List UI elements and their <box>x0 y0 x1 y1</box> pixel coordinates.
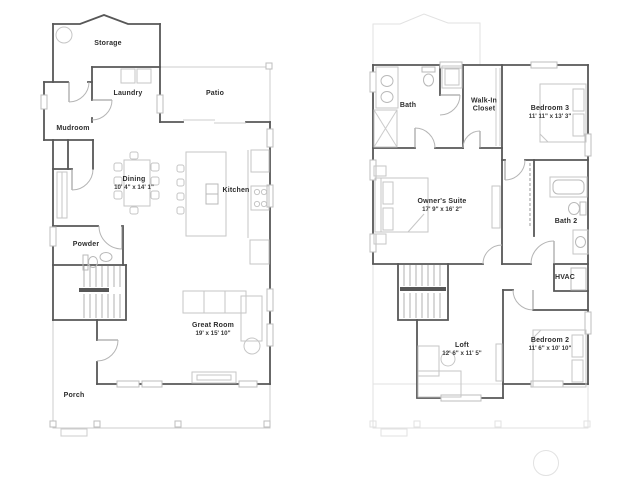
fridge <box>250 240 269 264</box>
door-arc <box>513 290 533 310</box>
stair-rail <box>400 287 446 291</box>
floorplan-canvas: Storage Laundry Patio Mudroom Dining10' … <box>0 0 640 480</box>
stair-treads <box>84 294 120 318</box>
water-heater <box>56 27 72 43</box>
burner <box>254 201 259 206</box>
sink <box>381 92 393 103</box>
powder-sink <box>100 253 112 262</box>
porch-step-overlay <box>381 429 407 436</box>
door-arc <box>440 95 460 115</box>
door-arc <box>483 245 502 264</box>
door-arc <box>415 128 435 148</box>
first-floor-drawing <box>0 0 320 480</box>
door-arc <box>463 131 480 148</box>
tv <box>197 375 231 380</box>
pillow <box>573 114 584 136</box>
ottoman <box>244 338 260 354</box>
porch-post-overlay <box>584 421 590 427</box>
porch-post <box>94 421 100 427</box>
window <box>370 72 376 92</box>
window <box>50 227 56 246</box>
stool <box>177 179 184 186</box>
pillow <box>383 208 393 230</box>
wall-storage-gable <box>53 15 160 24</box>
sliding-door <box>183 120 246 123</box>
tv-console <box>192 372 236 383</box>
porch-post-overlay <box>495 421 501 427</box>
porch-post <box>50 421 56 427</box>
window <box>239 381 257 387</box>
room-label-porch: Porch <box>64 392 85 400</box>
porch-post <box>175 421 181 427</box>
sink <box>576 237 586 248</box>
wall-loft <box>417 320 503 398</box>
toilet-tank <box>580 202 586 215</box>
porch-post <box>264 421 270 427</box>
window <box>440 62 462 68</box>
room-label-dining: Dining10' 4" x 14' 1" <box>114 176 154 192</box>
washer <box>121 69 135 83</box>
roof-overlay <box>373 14 480 65</box>
door-arc <box>531 241 554 264</box>
sofa <box>183 291 246 313</box>
window <box>41 95 47 109</box>
burner <box>254 189 259 194</box>
window <box>267 129 273 147</box>
second-floor-plan: Bath Walk-In Closet Bedroom 311' 11" x 1… <box>320 0 640 480</box>
pillow <box>572 360 583 382</box>
porch-outline <box>53 320 270 428</box>
chair <box>130 152 138 159</box>
shower-stall-inner <box>445 69 459 85</box>
window <box>117 381 139 387</box>
room-label-bedroom3: Bedroom 311' 11" x 13' 3" <box>529 105 572 121</box>
dryer <box>137 69 151 83</box>
door-arc <box>97 340 118 361</box>
stair-treads <box>404 265 440 286</box>
room-label-powder: Powder <box>73 241 99 249</box>
blanket-fold <box>540 134 548 142</box>
door-arc <box>92 100 112 120</box>
chair <box>114 191 122 199</box>
stool <box>177 165 184 172</box>
window <box>142 381 162 387</box>
room-label-great-room: Great Room19' x 15' 10" <box>192 322 234 338</box>
window <box>531 62 557 68</box>
door-arc <box>99 226 122 249</box>
stair-rail <box>79 288 109 292</box>
room-label-storage: Storage <box>94 40 121 48</box>
watermark-circle <box>534 451 559 476</box>
sofa-chaise <box>241 296 262 341</box>
patio-post <box>266 63 272 69</box>
window <box>267 324 273 346</box>
window <box>157 95 163 113</box>
pillow <box>572 335 583 357</box>
room-label-loft: Loft12' 6" x 11' 5" <box>442 342 481 358</box>
room-label-bath2: Bath 2 <box>555 218 578 226</box>
stool <box>177 193 184 200</box>
room-label-owners-suite: Owner's Suite17' 9" x 16' 2" <box>418 198 467 214</box>
console <box>496 344 502 381</box>
first-floor-plan: Storage Laundry Patio Mudroom Dining10' … <box>0 0 320 480</box>
blanket-fold <box>408 214 424 232</box>
room-label-bath: Bath <box>400 102 416 110</box>
dresser <box>492 186 500 228</box>
sink <box>381 76 393 87</box>
room-label-patio: Patio <box>206 90 224 98</box>
toilet-tank <box>422 67 435 72</box>
stair-treads <box>84 266 120 287</box>
second-floor-drawing <box>320 0 640 480</box>
door-arc <box>505 160 525 180</box>
chair <box>130 207 138 214</box>
stove <box>251 186 269 210</box>
door-arc <box>69 82 89 102</box>
shower-x <box>374 110 397 147</box>
chair <box>151 163 159 171</box>
sofa-cushions <box>204 291 225 313</box>
stair-treads <box>404 293 440 318</box>
pillow <box>383 182 393 204</box>
window <box>267 185 273 207</box>
room-label-bedroom2: Bedroom 211' 6" x 10' 10" <box>529 337 572 353</box>
room-label-hvac: HVAC <box>555 274 575 282</box>
room-label-kitchen: Kitchen <box>222 187 249 195</box>
window <box>370 160 376 180</box>
room-label-laundry: Laundry <box>113 90 142 98</box>
tub-inner <box>553 180 584 194</box>
pillow <box>573 89 584 111</box>
oven-cabinet <box>251 150 269 172</box>
chair <box>114 163 122 171</box>
porch-step <box>61 429 87 436</box>
toilet-bowl <box>569 203 580 215</box>
porch-post-overlay <box>414 421 420 427</box>
window <box>531 381 563 387</box>
burner <box>261 201 266 206</box>
bath-vanity <box>376 67 398 108</box>
stool <box>177 207 184 214</box>
window <box>370 234 376 252</box>
burner <box>261 189 266 194</box>
room-label-mudroom: Mudroom <box>56 125 89 133</box>
toilet-bowl <box>424 74 434 86</box>
door-arc <box>72 169 93 190</box>
window <box>267 289 273 311</box>
room-label-walk-in-closet: Walk-In Closet <box>466 98 502 115</box>
chair <box>151 191 159 199</box>
